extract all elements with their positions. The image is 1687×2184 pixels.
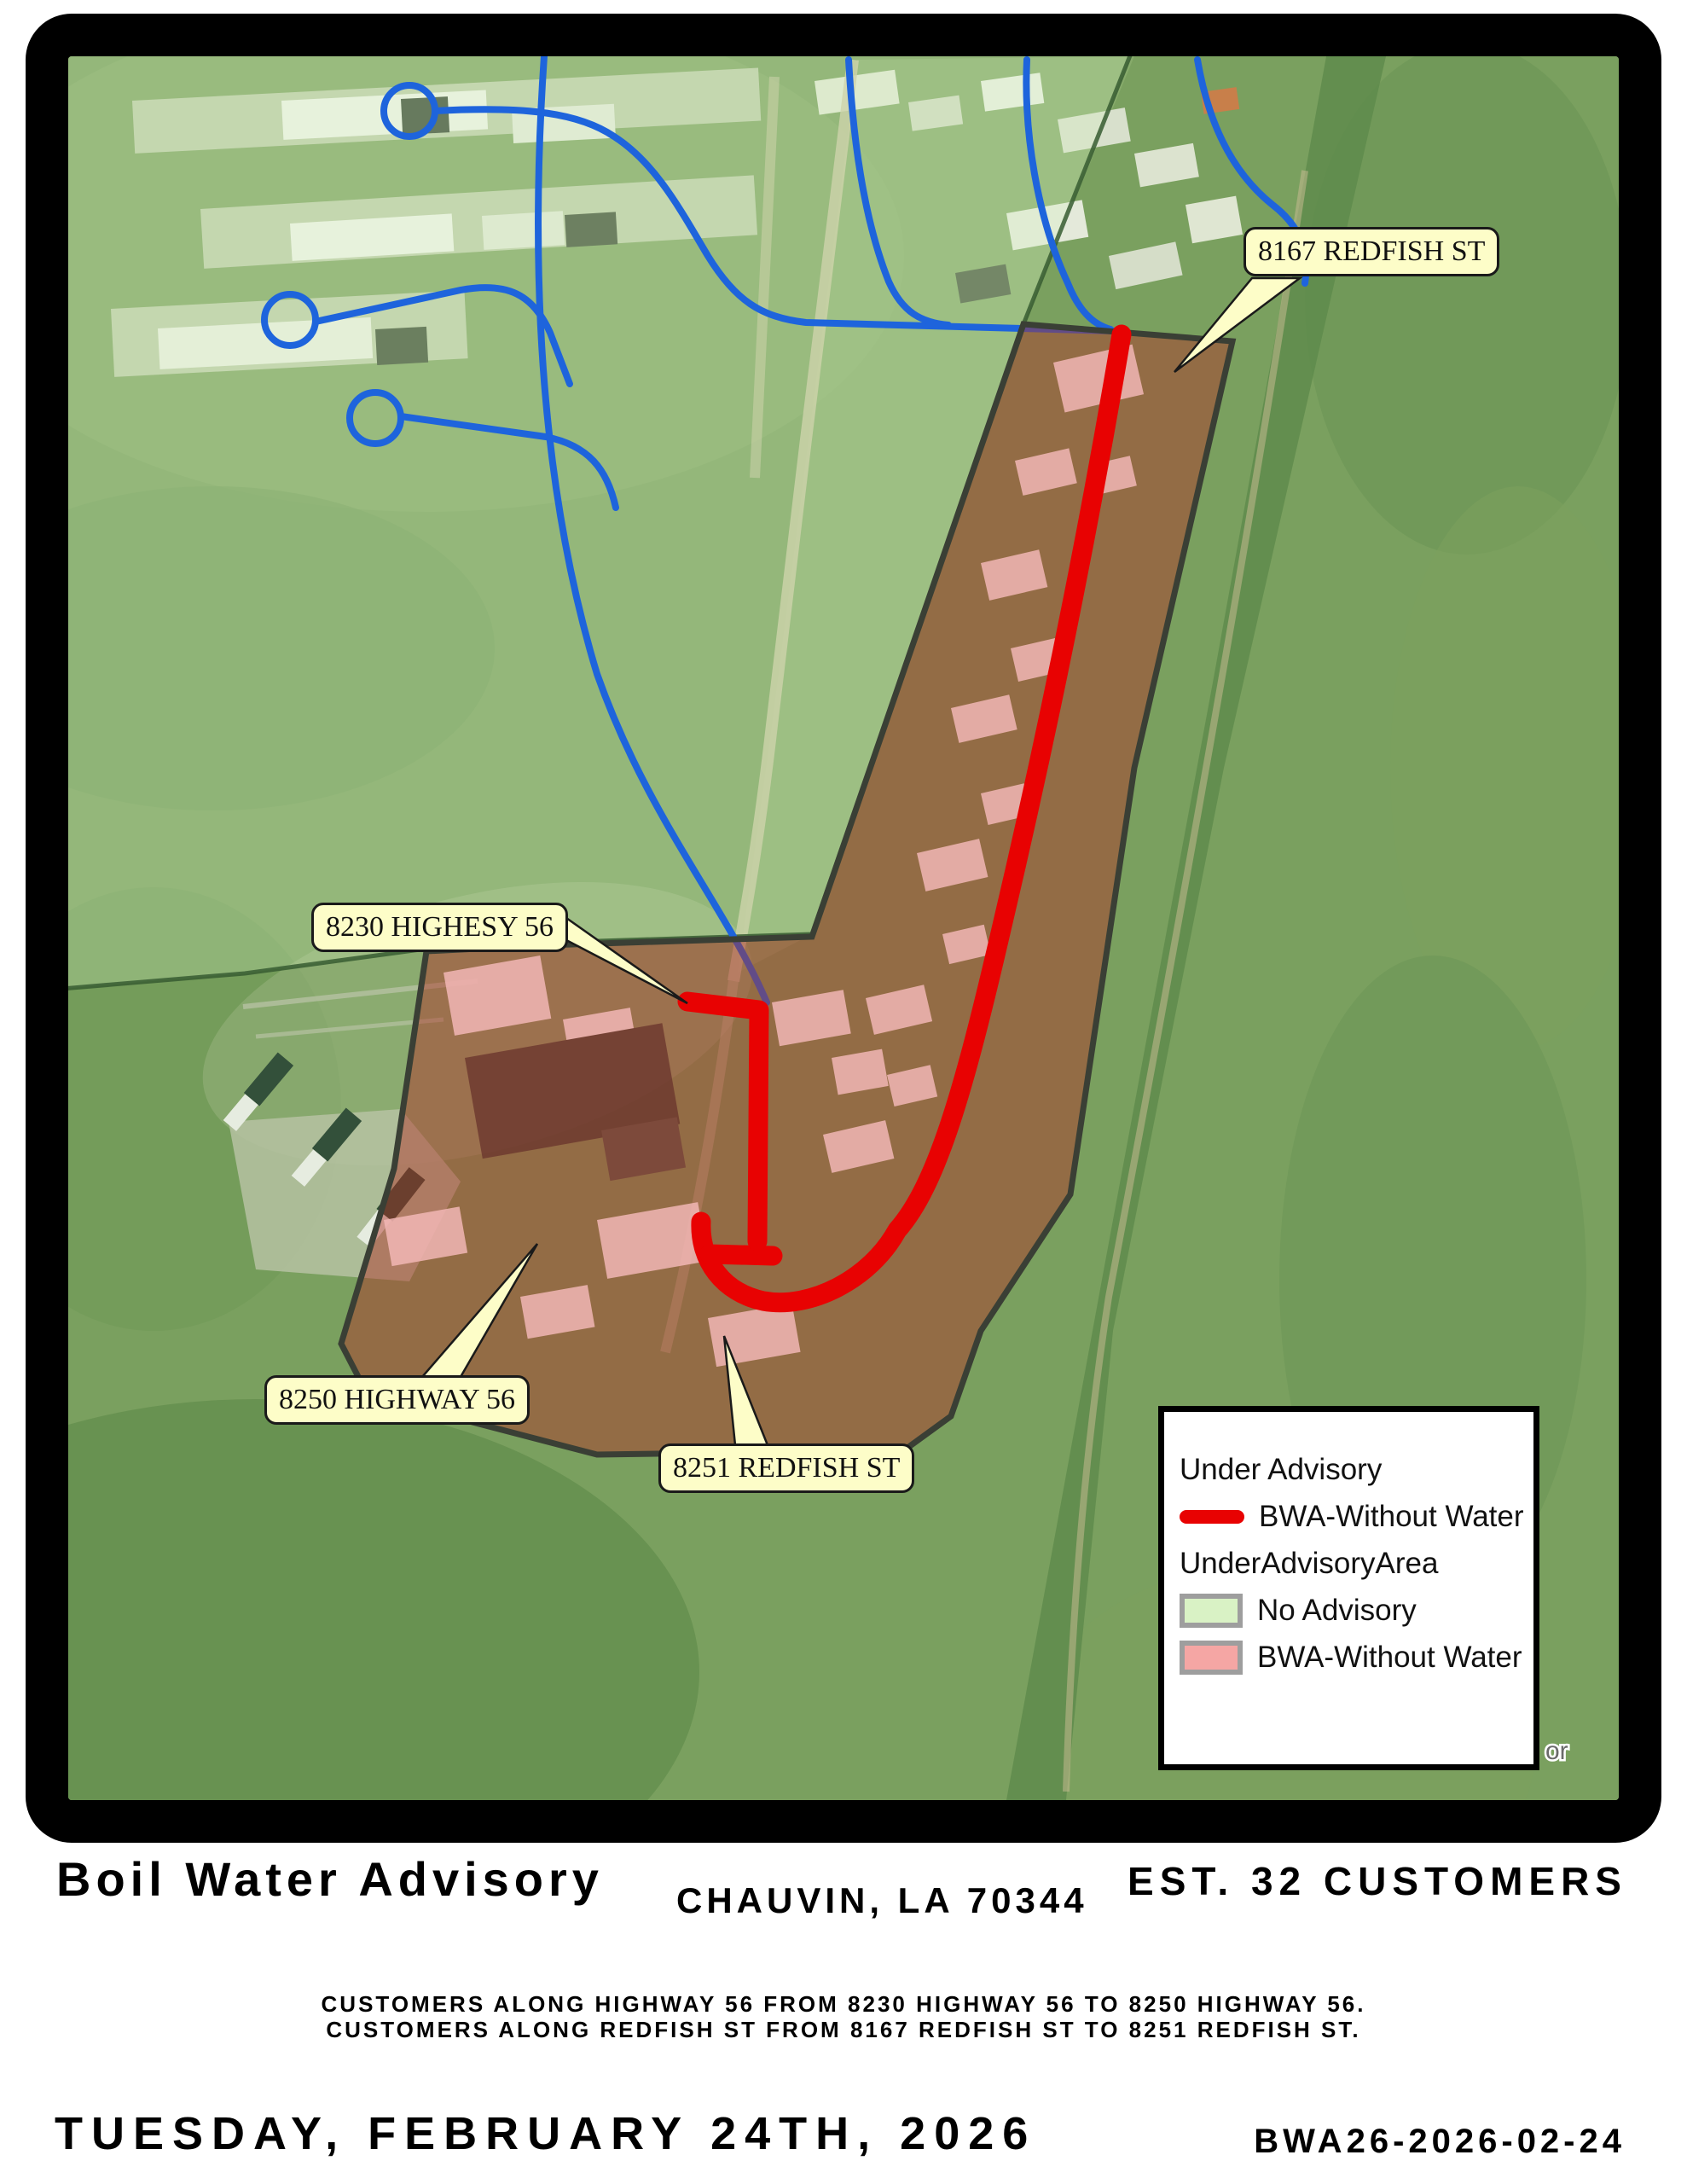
bwa-line-swatch [1180,1510,1244,1524]
callout-redfish-8167: 8167 REDFISH ST [1244,227,1499,276]
attribution-text: or [1545,1737,1568,1765]
route-inner-spur [710,1254,773,1256]
callout-redfish-8251: 8251 REDFISH ST [658,1443,914,1493]
advisory-description: CUSTOMERS ALONG HIGHWAY 56 FROM 8230 HIG… [0,1991,1687,2042]
callout-label: 8230 HIGHESY 56 [326,911,554,943]
legend-row-no-advisory: No Advisory [1180,1587,1527,1634]
legend-header: Under Advisory [1180,1446,1527,1493]
legend-label: No Advisory [1257,1594,1417,1628]
map-legend: Under Advisory BWA-Without Water UnderAd… [1158,1406,1539,1770]
callout-highway-8230: 8230 HIGHESY 56 [311,903,568,952]
legend-label: BWA-Without Water [1257,1641,1522,1675]
page-title: Boil Water Advisory [56,1851,604,1907]
legend-row-bwa-area: BWA-Without Water [1180,1634,1527,1681]
advisory-id: BWA26-2026-02-24 [1254,2123,1626,2161]
customer-count: EST. 32 CUSTOMERS [1128,1858,1627,1904]
map-frame: or 8167 REDFISH ST 8230 HIGHESY 56 8250 … [26,14,1661,1843]
description-line: CUSTOMERS ALONG HIGHWAY 56 FROM 8230 HIG… [0,1991,1687,2017]
bwa-area-swatch [1180,1641,1243,1675]
legend-row-bwa-line: BWA-Without Water [1180,1493,1527,1540]
legend-label: BWA-Without Water [1259,1500,1524,1534]
no-advisory-swatch [1180,1594,1243,1628]
legend-group-title: UnderAdvisoryArea [1180,1540,1527,1587]
city-label: CHAUVIN, LA 70344 [676,1880,1088,1921]
advisory-page: or 8167 REDFISH ST 8230 HIGHESY 56 8250 … [0,0,1687,2184]
callout-label: 8167 REDFISH ST [1258,235,1485,267]
advisory-date: TUESDAY, FEBRUARY 24TH, 2026 [55,2107,1036,2160]
callout-label: 8250 HIGHWAY 56 [279,1384,515,1415]
callout-label: 8251 REDFISH ST [673,1452,900,1484]
callout-highway-8250: 8250 HIGHWAY 56 [264,1375,530,1425]
description-line: CUSTOMERS ALONG REDFISH ST FROM 8167 RED… [0,2017,1687,2042]
